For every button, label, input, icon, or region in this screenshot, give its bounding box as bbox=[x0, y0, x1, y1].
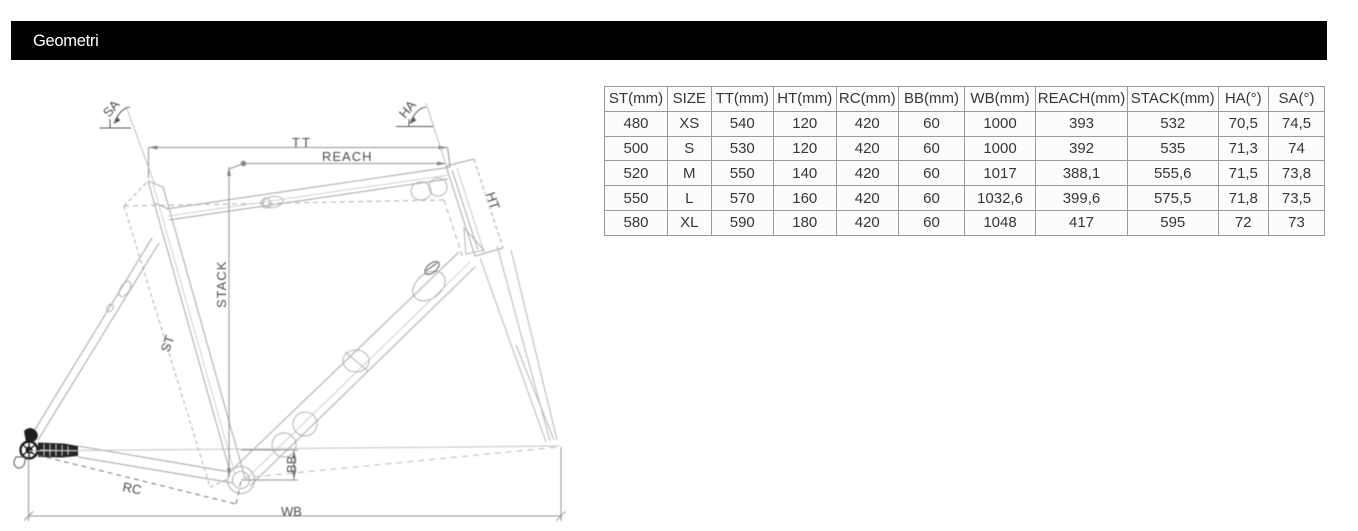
svg-text:SA: SA bbox=[100, 97, 123, 120]
svg-text:BB: BB bbox=[284, 456, 299, 473]
svg-text:ST: ST bbox=[158, 333, 178, 354]
svg-text:REACH: REACH bbox=[322, 149, 373, 164]
svg-text:STACK: STACK bbox=[214, 261, 229, 308]
svg-text:RC: RC bbox=[121, 479, 142, 497]
svg-text:HT: HT bbox=[483, 190, 503, 211]
svg-text:WB: WB bbox=[281, 504, 302, 519]
svg-text:HA: HA bbox=[396, 97, 419, 121]
svg-text:TT: TT bbox=[292, 135, 312, 150]
